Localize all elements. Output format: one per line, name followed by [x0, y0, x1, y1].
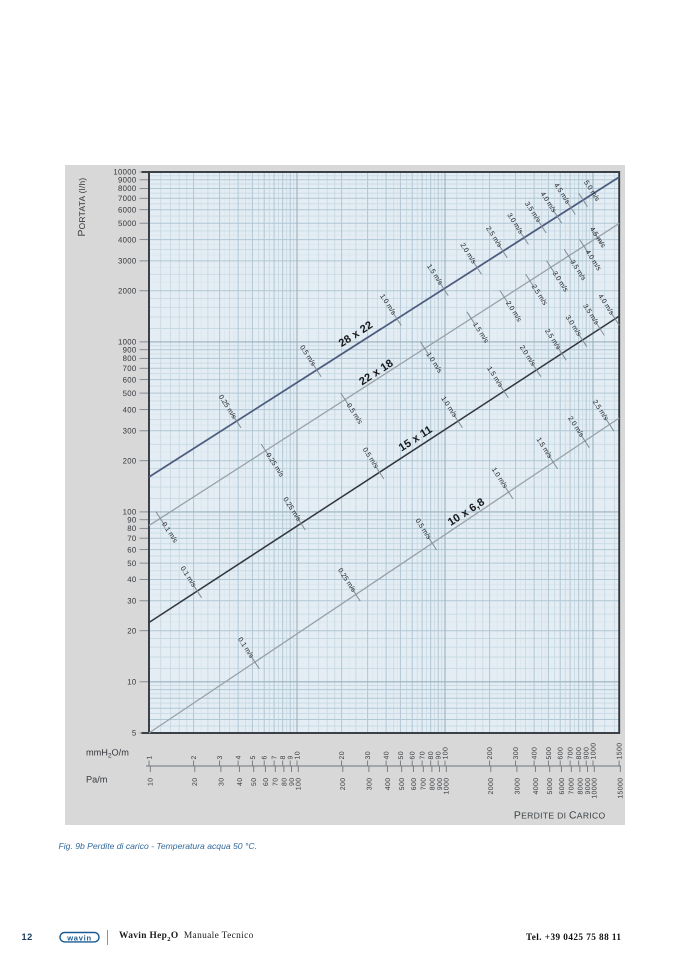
svg-text:8: 8 [280, 755, 287, 759]
svg-text:10: 10 [294, 751, 301, 759]
svg-text:5: 5 [250, 755, 257, 759]
svg-text:7000: 7000 [569, 778, 576, 795]
svg-text:200: 200 [487, 747, 494, 760]
svg-text:5: 5 [132, 729, 137, 738]
svg-text:80: 80 [127, 524, 137, 533]
svg-text:400: 400 [532, 747, 539, 760]
svg-text:3: 3 [217, 755, 224, 759]
svg-text:500: 500 [546, 747, 553, 760]
svg-text:50: 50 [251, 778, 258, 786]
svg-text:70: 70 [127, 534, 137, 543]
svg-text:500: 500 [399, 778, 406, 791]
svg-text:400: 400 [123, 405, 137, 414]
svg-text:70: 70 [273, 778, 280, 786]
svg-text:5000: 5000 [118, 219, 137, 228]
svg-text:600: 600 [411, 778, 418, 791]
svg-text:PORTATA (l/h): PORTATA (l/h) [77, 177, 88, 236]
svg-text:200: 200 [340, 778, 347, 791]
svg-text:2000: 2000 [118, 287, 137, 296]
svg-text:3000: 3000 [514, 778, 521, 795]
svg-text:40: 40 [384, 751, 391, 759]
svg-text:8000: 8000 [577, 778, 584, 795]
svg-text:wavin: wavin [66, 934, 92, 943]
svg-text:5000: 5000 [547, 778, 554, 795]
svg-text:60: 60 [127, 545, 137, 554]
svg-text:700: 700 [123, 364, 137, 373]
svg-text:20: 20 [127, 626, 137, 635]
svg-text:1500: 1500 [617, 743, 624, 760]
svg-text:700: 700 [421, 778, 428, 791]
svg-text:10: 10 [127, 678, 137, 687]
svg-text:800: 800 [123, 354, 137, 363]
svg-text:700: 700 [568, 747, 575, 760]
svg-text:10000: 10000 [592, 778, 599, 799]
svg-text:80: 80 [281, 778, 288, 786]
svg-text:9000: 9000 [118, 176, 137, 185]
svg-text:400: 400 [385, 778, 392, 791]
svg-text:60: 60 [263, 778, 270, 786]
svg-text:90: 90 [127, 515, 137, 524]
svg-text:Pa/m: Pa/m [86, 775, 108, 785]
svg-text:20: 20 [192, 778, 199, 786]
svg-text:900: 900 [123, 345, 137, 354]
svg-text:40: 40 [237, 778, 244, 786]
svg-text:6: 6 [262, 755, 269, 759]
svg-text:2000: 2000 [488, 778, 495, 795]
svg-text:4000: 4000 [533, 778, 540, 795]
svg-text:2: 2 [191, 755, 198, 759]
svg-text:1: 1 [146, 755, 153, 759]
svg-text:100: 100 [296, 778, 303, 791]
svg-text:3000: 3000 [118, 257, 137, 266]
svg-text:70: 70 [420, 751, 427, 759]
svg-text:PERDITE DI CARICO: PERDITE DI CARICO [514, 811, 606, 822]
svg-text:80: 80 [428, 751, 435, 759]
svg-text:800: 800 [576, 747, 583, 760]
svg-text:100: 100 [442, 747, 449, 760]
svg-text:200: 200 [123, 456, 137, 465]
svg-text:300: 300 [513, 747, 520, 760]
svg-text:7: 7 [272, 755, 279, 759]
svg-text:300: 300 [123, 427, 137, 436]
svg-text:50: 50 [127, 559, 137, 568]
svg-text:7000: 7000 [118, 194, 137, 203]
svg-text:8000: 8000 [118, 184, 137, 193]
svg-text:1000: 1000 [444, 778, 451, 795]
svg-text:4: 4 [236, 755, 243, 759]
svg-text:15000: 15000 [618, 778, 625, 799]
svg-text:4000: 4000 [118, 235, 137, 244]
svg-text:300: 300 [366, 778, 373, 791]
svg-text:30: 30 [127, 597, 137, 606]
svg-text:60: 60 [410, 751, 417, 759]
svg-text:600: 600 [558, 747, 565, 760]
svg-text:50: 50 [398, 751, 405, 759]
svg-text:6000: 6000 [559, 778, 566, 795]
svg-text:800: 800 [429, 778, 436, 791]
svg-text:600: 600 [123, 375, 137, 384]
svg-text:10: 10 [148, 778, 155, 786]
svg-text:40: 40 [127, 575, 137, 584]
svg-text:6000: 6000 [118, 205, 137, 214]
svg-text:30: 30 [365, 751, 372, 759]
svg-text:1000: 1000 [590, 743, 597, 760]
svg-text:20: 20 [339, 751, 346, 759]
svg-text:30: 30 [218, 778, 225, 786]
svg-text:500: 500 [123, 389, 137, 398]
